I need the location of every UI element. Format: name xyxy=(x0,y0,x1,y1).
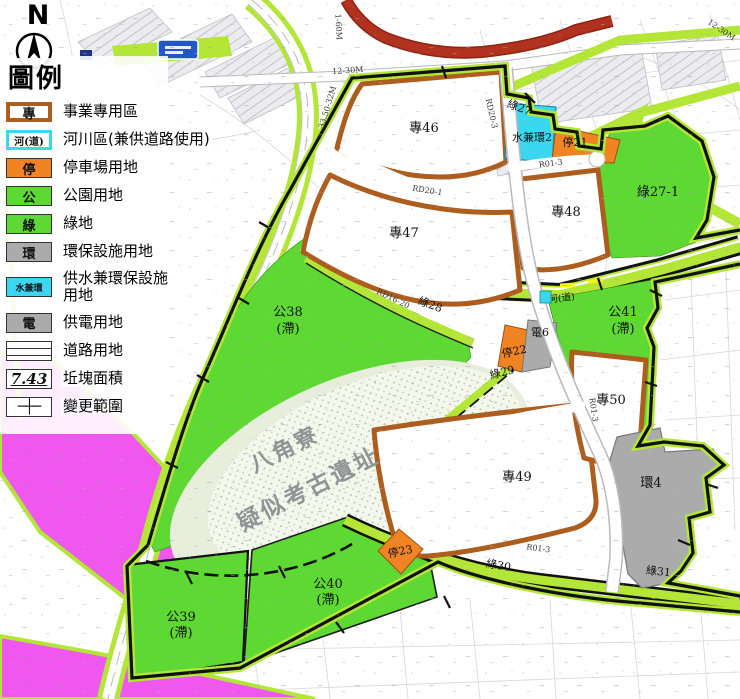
label-green-27-1: 綠27-1 xyxy=(637,185,679,200)
legend-item-area: 7.43 坵塊面積 xyxy=(6,369,318,389)
water-env-zone-swatch: 水兼環 xyxy=(6,277,52,297)
change-boundary-swatch: ─┼─ xyxy=(6,397,52,417)
river-road-marker xyxy=(540,291,551,303)
park-zone-swatch: 公 xyxy=(6,186,52,206)
power-zone-swatch: 電 xyxy=(6,313,52,333)
legend-item-power: 電 供電用地 xyxy=(6,313,318,333)
label-park-40-drain: (滯) xyxy=(316,593,339,608)
label-park-40: 公40 xyxy=(313,577,343,592)
legend-item-river: 河(道) 河川區(兼供道路使用) xyxy=(6,130,318,150)
compass-n-label: N xyxy=(16,2,60,29)
legend-item-park: 公 公園用地 xyxy=(6,186,318,206)
road-swatch xyxy=(6,341,52,361)
label-park-39: 公39 xyxy=(166,610,196,625)
label-env-4: 環4 xyxy=(640,476,661,491)
special-zone-swatch: 專 xyxy=(6,102,52,122)
legend-item-parking: 停 停車場用地 xyxy=(6,158,318,178)
legend-item-water-env: 水兼環 供水兼環保設施用地 xyxy=(6,270,318,305)
label-green-31: 綠31 xyxy=(645,564,671,580)
legend-item-boundary: ─┼─ 變更範圍 xyxy=(6,397,318,417)
label-zone-50: 專50 xyxy=(596,393,626,408)
env-zone-swatch: 環 xyxy=(6,242,52,262)
label-park-41: 公41 xyxy=(608,305,638,320)
label-zone-49: 專49 xyxy=(502,470,532,485)
river-zone-swatch: 河(道) xyxy=(6,130,52,150)
legend-item-special: 專 事業專用區 xyxy=(6,102,318,122)
label-zone-48: 專48 xyxy=(551,205,581,220)
block-area-swatch: 7.43 xyxy=(6,369,52,389)
legend-item-green: 綠 綠地 xyxy=(6,214,318,234)
label-zone-46: 專46 xyxy=(409,121,439,136)
legend-item-road: 道路用地 xyxy=(6,341,318,361)
green-zone-swatch: 綠 xyxy=(6,214,52,234)
label-power-6: 電6 xyxy=(531,326,549,339)
label-park-39-drain: (滯) xyxy=(169,626,192,641)
label-parking-21: 停21 xyxy=(563,135,588,149)
label-zone-47: 專47 xyxy=(389,226,419,241)
parking-zone-swatch: 停 xyxy=(6,158,52,178)
legend-item-env: 環 環保設施用地 xyxy=(6,242,318,262)
label-road-1-60m: 1-60M xyxy=(333,14,343,41)
zoning-map-page: 八角寮 疑似考古遺址 專46 專47 專48 專49 專50 公38 (滯) 公… xyxy=(0,0,740,699)
label-park-41-drain: (滯) xyxy=(611,322,634,337)
label-water-env-2: 水兼環2 xyxy=(512,131,552,144)
legend: 圖例 專 事業專用區 河(道) 河川區(兼供道路使用) 停 停車場用地 公 公園… xyxy=(6,58,318,417)
legend-title: 圖例 xyxy=(6,58,66,95)
